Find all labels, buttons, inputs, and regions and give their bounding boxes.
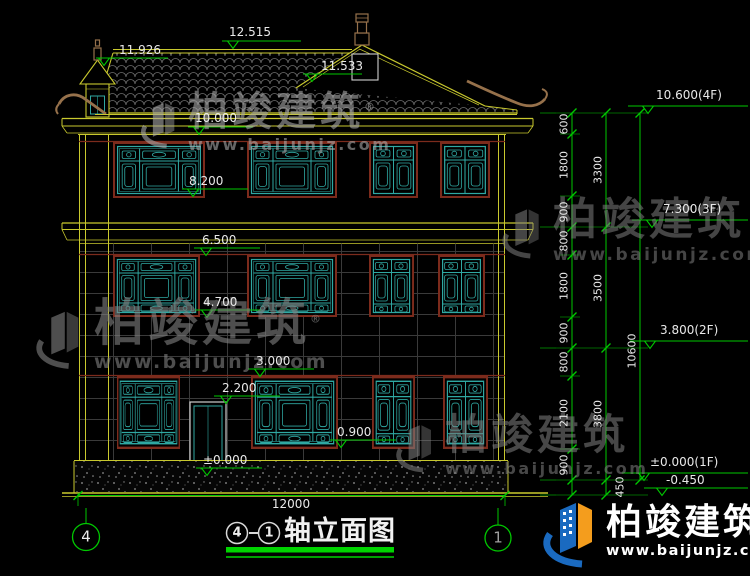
axis-bubble-4: 4	[81, 530, 91, 545]
level-label: 11.533	[321, 60, 363, 72]
dim-label: 450	[615, 477, 626, 498]
level-label: 10.600(4F)	[656, 89, 722, 101]
brand-url: www.baijunjz.com	[606, 543, 750, 559]
cad-linework	[0, 0, 750, 576]
dim-label: 3800	[593, 400, 604, 428]
level-label: 8.200	[189, 175, 223, 187]
level-label: 11.926	[119, 44, 161, 56]
dim-label: 1800	[559, 151, 570, 179]
level-label: 6.500	[202, 234, 236, 246]
axis-bubble-1: 1	[493, 531, 503, 546]
level-label: ±0.000	[203, 454, 247, 466]
dim-label: 800	[559, 352, 570, 373]
level-label: -0.450	[666, 474, 705, 486]
dim-label: 1800	[559, 272, 570, 300]
dim-label: 900	[559, 455, 570, 476]
window	[370, 256, 413, 316]
level-label: 3.000	[256, 355, 290, 367]
plinth	[74, 461, 508, 494]
dim-label: 900	[559, 202, 570, 223]
level-label: 10.000	[195, 112, 237, 124]
brand-logo-icon	[538, 496, 602, 568]
tower-finial	[94, 40, 101, 60]
title-circle-4: 4	[232, 527, 241, 540]
dim-label: 3300	[593, 156, 604, 184]
window	[248, 256, 336, 316]
elevation-drawing-canvas: 12.515 11.926 11.533 10.000 8.200 6.500 …	[0, 0, 750, 576]
title-circle-1: 1	[264, 527, 273, 540]
level-label: 7.300(3F)	[663, 203, 721, 215]
dim-label: 10600	[627, 334, 638, 369]
dim-label: 2100	[559, 399, 570, 427]
level-label: 4.700	[203, 296, 237, 308]
window	[118, 377, 180, 448]
drawing-title: 轴立面图	[284, 518, 396, 545]
window	[373, 377, 414, 448]
dim-label: 800	[559, 231, 570, 252]
brand-logo: 柏竣建筑 www.baijunjz.com	[538, 496, 750, 568]
level-label: 12.515	[229, 26, 271, 38]
window	[439, 256, 484, 316]
level-label: 0.900	[337, 426, 371, 438]
overall-width-label: 12000	[272, 498, 310, 510]
level-label: ±0.000(1F)	[650, 456, 718, 468]
dim-label: 600	[559, 114, 570, 135]
window	[444, 377, 487, 448]
dim-label: 900	[559, 323, 570, 344]
floor-cornice-7300	[62, 223, 533, 244]
brand-name: 柏竣建筑	[606, 505, 750, 541]
window	[441, 143, 489, 197]
level-label: 2.200	[222, 382, 256, 394]
window	[252, 377, 337, 448]
third-floor-windows	[114, 143, 489, 197]
level-label: 3.800(2F)	[660, 324, 718, 336]
window	[370, 143, 417, 197]
eave-cornice-10000	[62, 115, 533, 134]
ridge-finial	[355, 14, 369, 45]
window	[248, 143, 336, 197]
window	[114, 256, 199, 316]
dim-label: 3500	[593, 274, 604, 302]
